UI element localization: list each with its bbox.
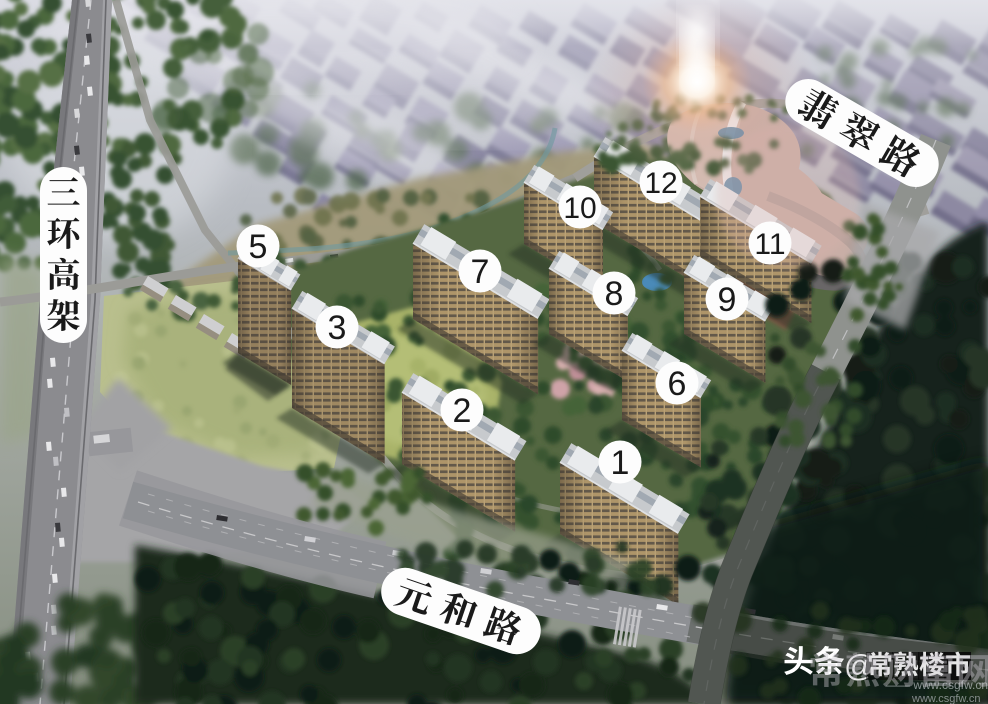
svg-text:www.csgfw.cn: www.csgfw.cn xyxy=(911,693,980,704)
svg-text:8: 8 xyxy=(605,275,624,313)
svg-text:11: 11 xyxy=(754,228,785,261)
svg-text:9: 9 xyxy=(718,281,737,319)
svg-text:12: 12 xyxy=(644,167,677,200)
svg-text:1: 1 xyxy=(611,444,630,482)
svg-text:2: 2 xyxy=(453,392,472,430)
svg-text:—— www.csgfw.cn: —— www.csgfw.cn xyxy=(886,678,988,692)
svg-text:6: 6 xyxy=(668,365,687,403)
svg-text:10: 10 xyxy=(563,192,596,225)
svg-text:3: 3 xyxy=(328,309,347,347)
svg-text:5: 5 xyxy=(249,228,268,266)
svg-text:7: 7 xyxy=(471,253,490,291)
